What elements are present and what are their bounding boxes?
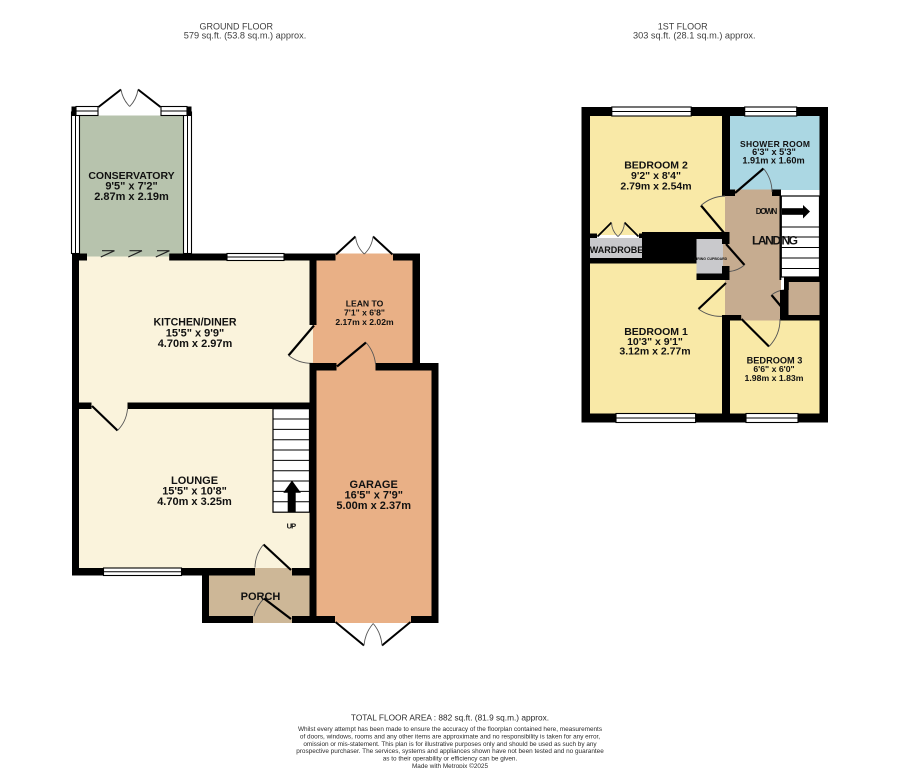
svg-text:1.98m x 1.83m: 1.98m x 1.83m xyxy=(745,373,804,383)
svg-text:1.91m x 1.60m: 1.91m x 1.60m xyxy=(742,155,804,165)
svg-text:omission or mis-statement. Thi: omission or mis-statement. This plan is … xyxy=(303,741,597,748)
svg-text:579 sq.ft. (53.8 sq.m.) approx: 579 sq.ft. (53.8 sq.m.) approx. xyxy=(184,31,307,41)
svg-text:2.17m x 2.02m: 2.17m x 2.02m xyxy=(335,317,394,327)
svg-text:as to their operability or eff: as to their operability or efficiency ca… xyxy=(383,756,518,763)
svg-text:4.70m x 3.25m: 4.70m x 3.25m xyxy=(157,496,232,508)
svg-text:2.87m x 2.19m: 2.87m x 2.19m xyxy=(94,191,169,203)
svg-text:Made with Metropix ©2025: Made with Metropix ©2025 xyxy=(412,762,489,768)
svg-text:UP: UP xyxy=(287,522,297,531)
svg-text:of doors, windows, rooms and a: of doors, windows, rooms and any other i… xyxy=(300,733,600,740)
svg-text:AIRING CUPBOARD: AIRING CUPBOARD xyxy=(694,257,728,261)
svg-text:3.12m x 2.77m: 3.12m x 2.77m xyxy=(619,345,690,357)
svg-text:WARDROBE: WARDROBE xyxy=(590,245,644,255)
svg-text:5.00m x 2.37m: 5.00m x 2.37m xyxy=(336,500,411,512)
svg-text:prospective purchaser. The ser: prospective purchaser. The services, sys… xyxy=(296,748,604,755)
svg-text:303 sq.ft. (28.1 sq.m.) approx: 303 sq.ft. (28.1 sq.m.) approx. xyxy=(633,31,756,41)
svg-text:TOTAL FLOOR AREA : 882 sq.ft.: TOTAL FLOOR AREA : 882 sq.ft. (81.9 sq.m… xyxy=(351,713,549,723)
svg-text:Whilst every attempt has been: Whilst every attempt has been made to en… xyxy=(298,726,602,733)
svg-text:LANDING: LANDING xyxy=(752,233,798,247)
svg-text:DOWN: DOWN xyxy=(756,207,778,216)
svg-text:2.79m x 2.54m: 2.79m x 2.54m xyxy=(620,180,691,192)
svg-text:4.70m x 2.97m: 4.70m x 2.97m xyxy=(158,338,233,350)
svg-text:PORCH: PORCH xyxy=(241,591,281,603)
